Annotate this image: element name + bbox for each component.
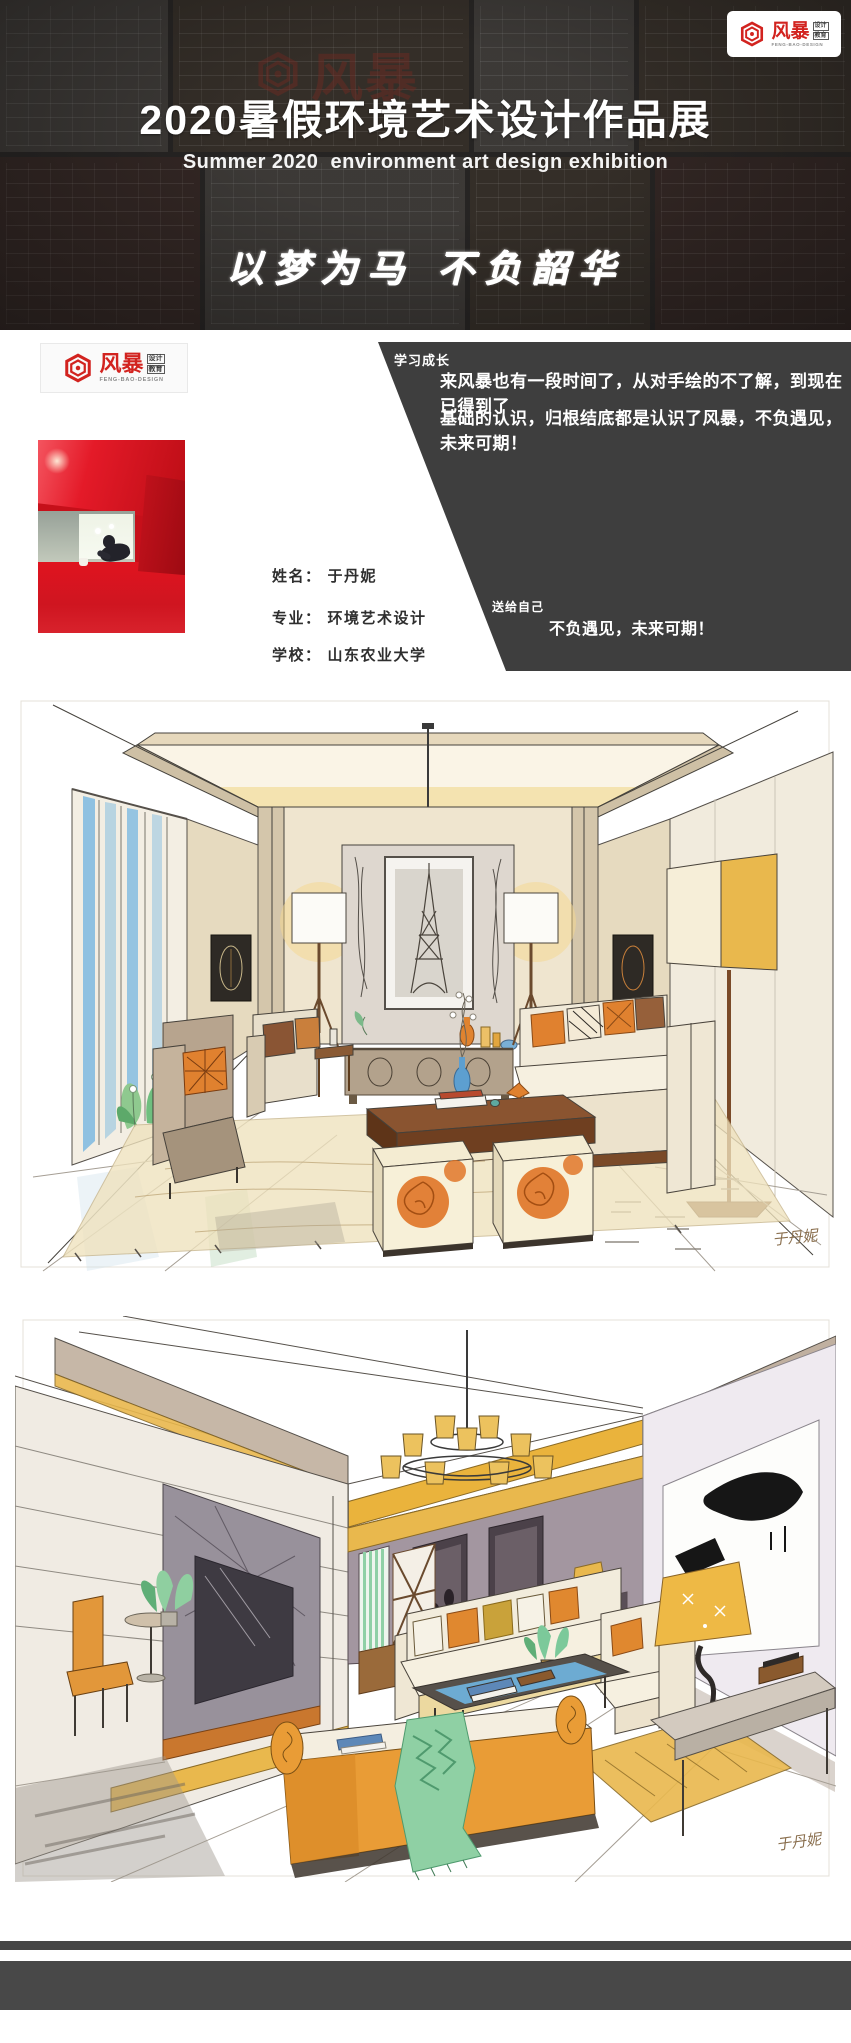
artwork-2-drawing: 于丹妮 <box>15 1316 836 1882</box>
brand-name-en: FENG-BAO-DESIGN <box>99 377 163 383</box>
ottoman-right <box>493 1135 593 1249</box>
artwork-1-living-room-rendering: 于丹妮 <box>15 697 836 1273</box>
field-school-label: 学校： <box>272 647 322 664</box>
exhibition-subtitle: Summer 2020 environment art design exhib… <box>0 151 851 174</box>
storm-logo-icon <box>63 353 93 383</box>
storm-logo-icon <box>739 21 765 47</box>
brand-sub-2: 教育 <box>147 365 165 375</box>
artwork-1-drawing: 于丹妮 <box>15 697 836 1273</box>
field-name: 姓名：于丹妮 <box>272 565 377 586</box>
field-major-label: 专业： <box>272 610 322 627</box>
photo-cup <box>79 558 88 566</box>
motto-calligraphy: 以梦为马 不负韶华 <box>0 238 851 292</box>
gift-label: 送给自己 <box>492 598 544 615</box>
brand-sub-2: 教育 <box>813 32 829 41</box>
student-photo <box>38 440 185 633</box>
field-school: 学校：山东农业大学 <box>272 644 427 665</box>
photo-light-glare <box>44 448 70 474</box>
brand-sub-1: 设计 <box>147 354 165 364</box>
growth-text-line2: 基础的认识，归根结底都是认识了风暴，不负遇见，未来可期！ <box>440 404 851 454</box>
ottoman-left <box>373 1141 473 1257</box>
gift-text: 不负遇见，未来可期！ <box>549 615 714 639</box>
eiffel-tower-picture <box>385 857 473 1009</box>
field-name-value: 于丹妮 <box>328 568 378 585</box>
field-major-value: 环境艺术设计 <box>328 610 427 627</box>
field-name-label: 姓名： <box>272 568 322 585</box>
poster-page: 风暴 2020暑假环境艺术设计作品展 Summer 2020 environme… <box>0 0 851 2043</box>
brand-logo-topright: 风暴 设计 教育 FENG-BAO-DESIGN <box>727 11 841 57</box>
brand-name-cn: 风暴 <box>771 22 809 41</box>
exhibition-title: 2020暑假环境艺术设计作品展 <box>0 86 851 146</box>
footer-bar-thick <box>0 1961 851 2010</box>
field-school-value: 山东农业大学 <box>328 647 427 664</box>
field-major: 专业：环境艺术设计 <box>272 607 427 628</box>
brand-name-en: FENG-BAO-DESIGN <box>771 42 823 47</box>
header-banner: 风暴 2020暑假环境艺术设计作品展 Summer 2020 environme… <box>0 0 851 330</box>
footer-bar-thin <box>0 1941 851 1950</box>
brand-name-cn: 风暴 <box>99 353 143 375</box>
brand-logo-section: 风暴 设计 教育 FENG-BAO-DESIGN <box>40 343 188 393</box>
brand-sub-1: 设计 <box>813 22 829 31</box>
photo-person-head <box>103 535 115 548</box>
artwork-2-living-room-rendering: 于丹妮 <box>15 1316 836 1882</box>
